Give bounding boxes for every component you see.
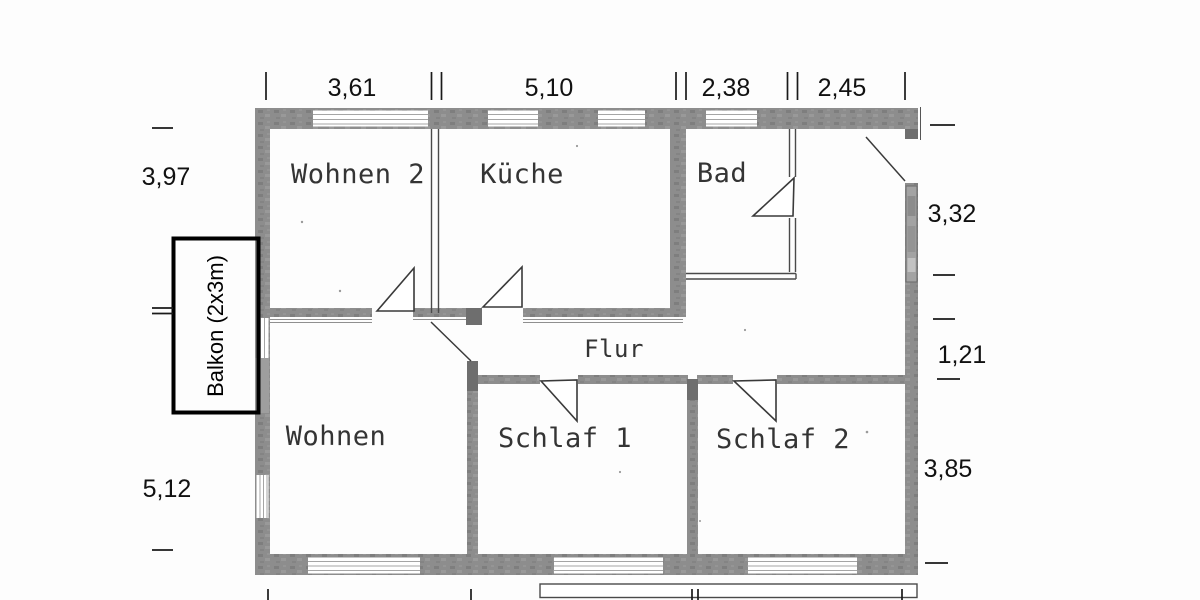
door-bad [753,178,794,216]
hall-north-wall-b [413,308,466,317]
dim-top-1: 3,61 [328,74,377,102]
hall-south-wall-c [697,375,733,384]
dim-top-3: 2,38 [702,74,751,102]
hall-south-wall-d [777,375,905,384]
room-label-schlaf2: Schlaf 2 [716,424,850,455]
window-schlaf1-south [554,558,663,574]
dim-top-2: 5,10 [525,74,574,102]
door-schlaf1 [541,380,577,421]
hall-south-wall-b [578,375,688,384]
dim-right-1: 3,32 [928,200,977,228]
hall-north-wall-c [523,308,683,317]
window-kueche-north-1 [488,111,538,127]
door-wohnen-swing [431,322,471,361]
dim-right-3: 3,85 [924,455,973,483]
hall-south-wall-a [475,375,540,384]
room-label-schlaf1: Schlaf 1 [498,423,632,454]
dim-right-2: 1,21 [938,341,987,369]
schlaf1-schlaf2-wall-cap [687,379,698,400]
door-schlaf2 [734,380,776,421]
room-label-wohnen2: Wohnen 2 [291,159,425,190]
hall-north-wall-a [270,308,372,317]
entrance-door-panel [906,186,917,282]
door-wohnen2 [377,268,414,311]
right-wall-lintel [905,129,918,139]
window-wohnen2-north [313,111,428,127]
room-label-flur: Flur [584,335,644,363]
terrace-outline [540,584,917,598]
floor-plan-scan: Balkon (2x3m) 3,61 5,10 2,38 2,45 3,97 5… [0,0,1200,600]
dimension-ticks [152,72,960,600]
room-label-kueche: Küche [480,159,564,190]
hall-north-wall-cap [466,308,482,325]
kueche-bad-wall [670,129,686,317]
dim-top-4: 2,45 [818,74,867,102]
window-kueche-north-2 [598,111,645,127]
dim-left-2: 5,12 [143,475,192,503]
dim-left-1: 3,97 [142,163,191,191]
bad-south-wall [686,274,796,280]
window-schlaf2-south [748,558,857,574]
schlaf1-schlaf2-wall [687,379,698,555]
window-wohnen-south [308,558,420,574]
entrance-door-swing [866,137,905,181]
wohnen2-kueche-wall [432,129,439,313]
balcony-label: Balkon (2x3m) [203,255,228,397]
wohnen-schlaf1-wall-cap [467,361,478,391]
door-kueche [483,267,522,307]
room-label-wohnen: Wohnen [286,421,387,452]
balcony-box: Balkon (2x3m) [174,239,259,413]
window-bad-north [706,111,757,127]
window-wohnen-west [257,475,269,518]
room-label-bad: Bad [697,158,747,189]
floor-plan-svg: Balkon (2x3m) 3,61 5,10 2,38 2,45 3,97 5… [0,0,1200,600]
